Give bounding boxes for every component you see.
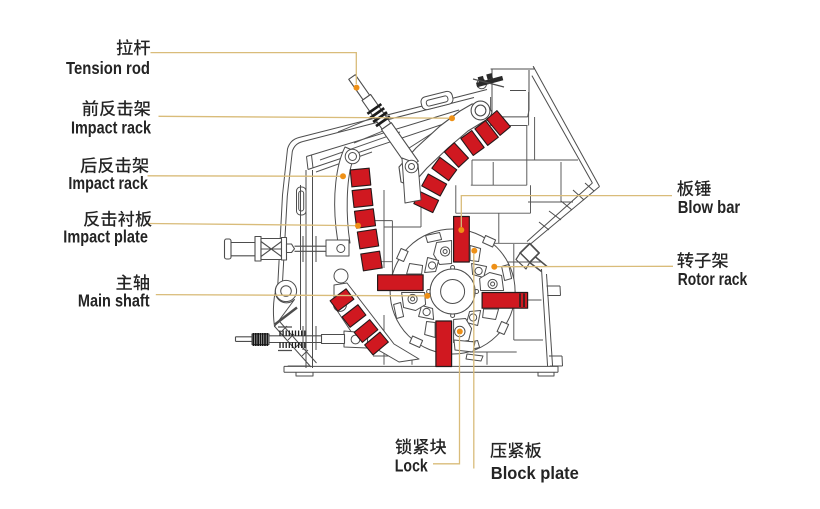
- svg-text:Rotor rack: Rotor rack: [678, 269, 748, 289]
- svg-text:Block plate: Block plate: [491, 463, 579, 483]
- svg-text:Lock: Lock: [395, 456, 428, 476]
- svg-text:Impact rack: Impact rack: [68, 173, 148, 193]
- svg-text:Blow bar: Blow bar: [678, 197, 741, 217]
- svg-text:Main shaft: Main shaft: [78, 291, 150, 311]
- svg-text:Impact rack: Impact rack: [71, 118, 151, 138]
- svg-text:Impact plate: Impact plate: [63, 227, 148, 247]
- svg-text:Tension rod: Tension rod: [66, 58, 150, 78]
